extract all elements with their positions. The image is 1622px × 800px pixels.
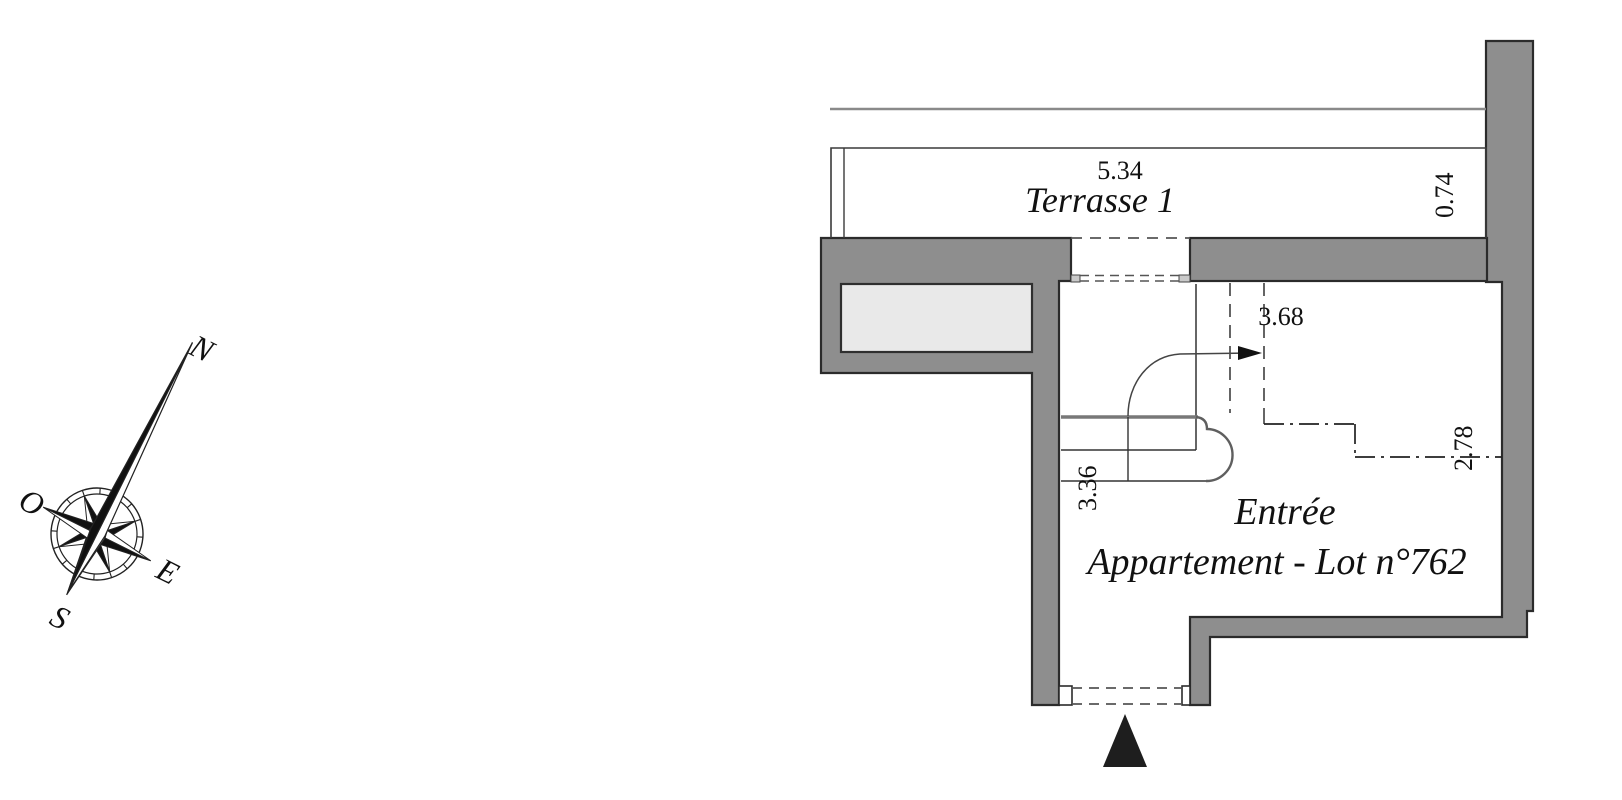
dim-entry-door: 3.68 bbox=[1258, 302, 1304, 331]
door-jamb-terrace-right bbox=[1179, 275, 1190, 282]
labels: 5.34 Terrasse 1 0.74 3.68 3.36 2.78 Entr… bbox=[1025, 156, 1478, 583]
compass-label-east: E bbox=[150, 550, 185, 592]
door-jamb-entrance-left bbox=[1059, 686, 1072, 705]
compass-label-south: S bbox=[45, 597, 75, 636]
compass-label-west: O bbox=[14, 481, 51, 524]
dim-entry-right: 2.78 bbox=[1449, 426, 1478, 472]
terrace-label: Terrasse 1 bbox=[1025, 180, 1175, 220]
compass-label-north: N bbox=[183, 327, 221, 370]
floor-plan-svg: 5.34 Terrasse 1 0.74 3.68 3.36 2.78 Entr… bbox=[0, 0, 1622, 800]
dim-terrace-depth: 0.74 bbox=[1430, 173, 1459, 219]
shaft-inset bbox=[841, 284, 1032, 352]
wall-band-right bbox=[1190, 238, 1487, 281]
stair-curved-end bbox=[1196, 417, 1233, 481]
entrance-marker-triangle bbox=[1103, 714, 1147, 767]
door-jamb-entrance-right bbox=[1182, 686, 1190, 705]
entry-label-line1: Entrée bbox=[1233, 491, 1335, 533]
floor-plan-page: 5.34 Terrasse 1 0.74 3.68 3.36 2.78 Entr… bbox=[0, 0, 1622, 800]
door-jamb-terrace-left bbox=[1071, 275, 1080, 282]
walls bbox=[821, 41, 1533, 705]
door-swing-arc bbox=[1128, 353, 1252, 416]
dim-entry-left: 3.36 bbox=[1073, 466, 1102, 512]
door-swing-arrowhead bbox=[1238, 346, 1262, 360]
entry-label-line2: Appartement - Lot n°762 bbox=[1084, 541, 1466, 583]
wall-right-bottom bbox=[1190, 41, 1533, 705]
compass-rose: N O E S bbox=[13, 316, 246, 637]
